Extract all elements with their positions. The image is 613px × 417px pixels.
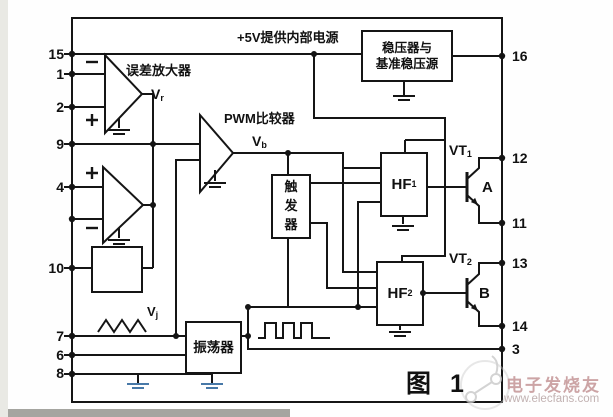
internal-power-label: +5V提供内部电源 [237, 30, 339, 47]
vj-signal-label: Vj [147, 304, 158, 322]
vt1-base-text: VT [449, 142, 467, 158]
figure-caption: 图 1 [406, 368, 470, 401]
vr-sub: r [160, 93, 164, 103]
photo-edge-bottom [0, 409, 290, 417]
vt1-label: VT1 [449, 141, 472, 161]
pin-7: 7 [38, 328, 64, 344]
pin-4: 4 [38, 179, 64, 195]
vt1-sub: 1 [467, 149, 472, 159]
pin-12: 12 [512, 150, 528, 166]
pwm-comparator-label: PWM比较器 [224, 111, 295, 128]
vj-sub: j [156, 310, 159, 320]
pin-14: 14 [512, 318, 528, 334]
pin-8: 8 [38, 365, 64, 381]
regulator-label: 稳压器与 基准稳压源 [362, 31, 452, 81]
pin-11: 11 [512, 215, 527, 231]
hf1-label: HF1 [381, 153, 427, 216]
vj-base: V [147, 304, 156, 319]
vt2-sub: 2 [467, 257, 472, 267]
hf2-base: HF [387, 284, 407, 304]
trigger-label: 触 发 器 [272, 175, 310, 238]
hf1-sub: 1 [411, 179, 416, 191]
schematic-figure: +5V提供内部电源 误差放大器 稳压器与 基准稳压源 PWM比较器 触 发 器 … [0, 0, 613, 417]
deadtime-box [92, 247, 142, 292]
hf2-label: HF2 [377, 262, 423, 325]
vb-signal-label: Vb [252, 132, 267, 152]
vt2-base-text: VT [449, 250, 467, 266]
pin-6: 6 [38, 347, 64, 363]
vb-sub: b [261, 140, 267, 150]
pin-16: 16 [512, 48, 528, 64]
pin-9: 9 [38, 136, 64, 152]
pin-13: 13 [512, 255, 528, 271]
pin-15: 15 [38, 46, 64, 62]
vr-signal-label: Vr [151, 85, 164, 105]
vt1-region-label: A [482, 178, 493, 198]
vb-base: V [252, 133, 261, 149]
pin-10: 10 [38, 260, 64, 276]
pin-1: 1 [38, 66, 64, 82]
pin-2: 2 [38, 99, 64, 115]
photo-edge-left [0, 0, 8, 417]
oscillator-label: 振荡器 [186, 322, 241, 373]
hf1-base: HF [391, 175, 411, 195]
watermark-url: www.elecfans.com [504, 393, 599, 405]
pin-3: 3 [512, 341, 520, 357]
pin-stubs-left [64, 54, 72, 374]
vt2-region-label: B [479, 284, 490, 304]
error-amp-label: 误差放大器 [126, 63, 191, 80]
hf2-sub: 2 [407, 288, 412, 300]
vt2-label: VT2 [449, 249, 472, 269]
vr-base: V [151, 86, 160, 102]
